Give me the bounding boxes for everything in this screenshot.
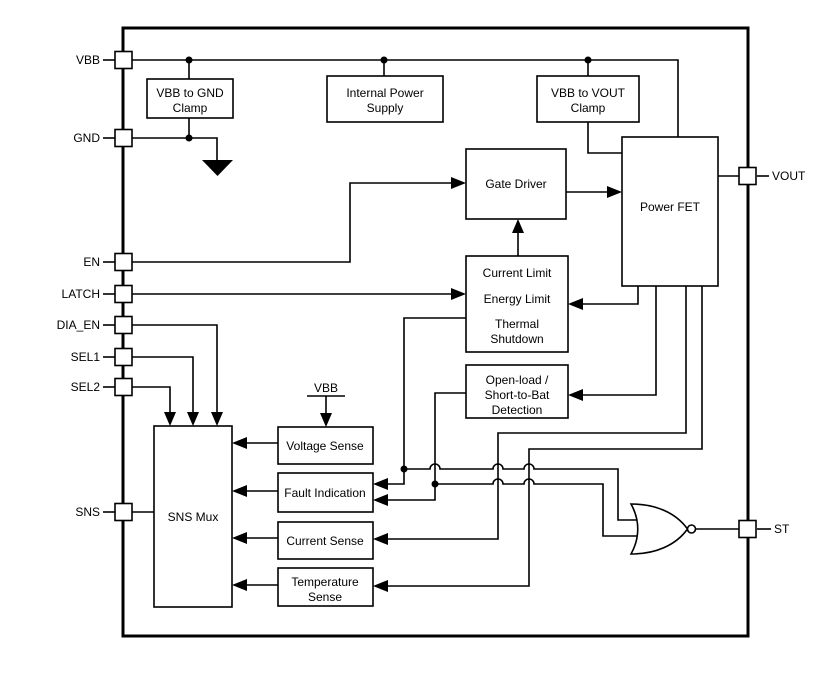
pin-label-st: ST (774, 522, 790, 536)
block-diagram: VBB to GND Clamp Internal Power Supply V… (0, 0, 840, 696)
pin-label-vout: VOUT (772, 169, 806, 183)
block-internal-power-supply: Internal Power Supply (327, 76, 443, 122)
block-protection: Current Limit Energy Limit Thermal Shutd… (466, 256, 568, 352)
pin-label-gnd: GND (73, 131, 100, 145)
block-power-fet: Power FET (622, 137, 718, 286)
block-diagram-page: VBB to GND Clamp Internal Power Supply V… (0, 0, 840, 696)
block-voltage-sense-label: Voltage Sense (286, 439, 364, 453)
block-open-load-label-3: Detection (492, 403, 543, 417)
block-sns-mux-label: SNS Mux (168, 510, 219, 524)
pin-dia-en (115, 317, 132, 334)
block-current-sense: Current Sense (278, 522, 373, 559)
block-fault-indication-label: Fault Indication (284, 486, 365, 500)
block-protection-label-2: Energy Limit (484, 292, 551, 306)
block-vbb-vout-clamp: VBB to VOUT Clamp (537, 76, 639, 122)
block-vbb-gnd-clamp-label-2: Clamp (173, 101, 208, 115)
block-vbb-gnd-clamp-label-1: VBB to GND (156, 86, 224, 100)
pin-sel1 (115, 349, 132, 366)
block-internal-power-supply-label-1: Internal Power (346, 86, 423, 100)
block-internal-power-supply-label-2: Supply (367, 101, 404, 115)
block-vbb-gnd-clamp: VBB to GND Clamp (147, 79, 233, 118)
pin-label-latch: LATCH (62, 287, 100, 301)
block-open-load-detection: Open-load / Short-to-Bat Detection (466, 365, 568, 418)
pin-label-dia-en: DIA_EN (57, 318, 100, 332)
nor-gate-bubble-icon (688, 525, 696, 533)
pin-label-vbb: VBB (76, 53, 100, 67)
block-voltage-sense: Voltage Sense (278, 427, 373, 464)
pin-sns (115, 504, 132, 521)
block-temperature-sense-label-1: Temperature (291, 575, 359, 589)
block-open-load-label-2: Short-to-Bat (485, 388, 550, 402)
junction-dot (585, 57, 592, 64)
junction-dot (401, 466, 408, 473)
pin-vout (739, 168, 756, 185)
block-protection-label-4: Shutdown (490, 332, 543, 346)
pin-latch (115, 286, 132, 303)
junction-dot (186, 57, 193, 64)
pin-label-sel2: SEL2 (71, 380, 101, 394)
block-sns-mux: SNS Mux (154, 426, 232, 607)
pin-label-sns: SNS (75, 505, 100, 519)
pin-sel2 (115, 379, 132, 396)
pin-label-sel1: SEL1 (71, 350, 101, 364)
vbb-rail-label: VBB (314, 381, 338, 395)
block-vbb-vout-clamp-label-2: Clamp (571, 101, 606, 115)
junction-dot (381, 57, 388, 64)
pin-label-en: EN (83, 255, 100, 269)
block-current-sense-label: Current Sense (286, 534, 364, 548)
junction-dot (432, 481, 439, 488)
block-vbb-vout-clamp-label-1: VBB to VOUT (551, 86, 626, 100)
pin-vbb (115, 52, 132, 69)
pin-en (115, 254, 132, 271)
junction-dot (186, 135, 193, 142)
block-gate-driver: Gate Driver (466, 149, 566, 219)
block-open-load-label-1: Open-load / (486, 373, 549, 387)
block-temperature-sense: Temperature Sense (278, 568, 373, 606)
block-power-fet-label: Power FET (640, 200, 701, 214)
block-protection-label-3: Thermal (495, 317, 539, 331)
pin-gnd (115, 130, 132, 147)
block-fault-indication: Fault Indication (278, 473, 373, 512)
block-temperature-sense-label-2: Sense (308, 590, 342, 604)
block-gate-driver-label: Gate Driver (485, 177, 546, 191)
block-protection-label-1: Current Limit (483, 266, 552, 280)
pin-st (739, 521, 756, 538)
